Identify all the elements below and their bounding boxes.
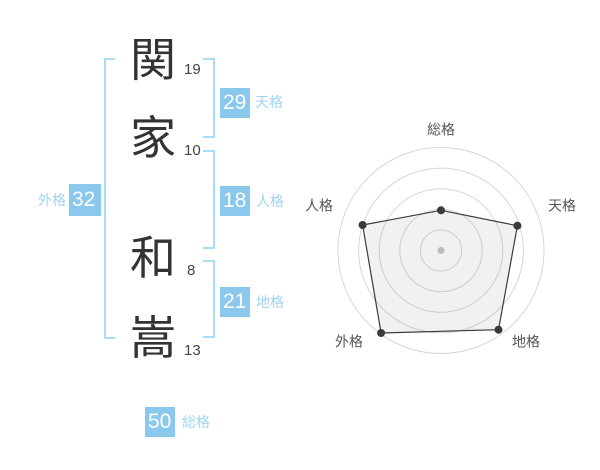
name-char-4: 嵩 bbox=[128, 314, 178, 362]
gaikaku-label: 外格 bbox=[36, 193, 66, 208]
jinkaku-badge: 18 bbox=[220, 186, 250, 216]
radar-axis-label-chikaku: 地格 bbox=[512, 334, 540, 350]
chikaku-label: 地格 bbox=[256, 295, 284, 310]
stroke-count-2: 10 bbox=[184, 143, 201, 158]
tenkaku-bracket bbox=[203, 58, 215, 138]
gaikaku-badge: 32 bbox=[69, 184, 101, 216]
name-fortune-result-panel: 関 19 家 10 和 8 嵩 13 29 天格 18 人格 21 地格 外格 … bbox=[0, 0, 600, 470]
stroke-count-4: 13 bbox=[184, 343, 201, 358]
radar-data-point bbox=[513, 222, 521, 230]
jinkaku-label: 人格 bbox=[256, 194, 284, 209]
radar-axis-label-soukaku: 総格 bbox=[427, 122, 455, 138]
stroke-count-1: 19 bbox=[184, 62, 201, 77]
name-char-3: 和 bbox=[128, 234, 178, 282]
radar-data-polygon bbox=[363, 210, 518, 333]
chikaku-badge: 21 bbox=[220, 287, 250, 317]
gaikaku-bracket bbox=[104, 58, 115, 339]
kaku-radar-chart: 総格天格地格外格人格 bbox=[300, 110, 590, 362]
tenkaku-label: 天格 bbox=[255, 95, 283, 110]
jinkaku-bracket bbox=[203, 150, 215, 249]
radar-axis-label-tenkaku: 天格 bbox=[548, 198, 576, 214]
soukaku-badge: 50 bbox=[145, 407, 175, 437]
name-char-2: 家 bbox=[128, 114, 178, 162]
radar-axis-label-gaikaku: 外格 bbox=[335, 334, 363, 350]
chikaku-bracket bbox=[203, 260, 215, 338]
radar-data-point bbox=[495, 326, 503, 334]
stroke-count-3: 8 bbox=[187, 263, 195, 278]
tenkaku-badge: 29 bbox=[220, 88, 250, 118]
radar-axis-label-jinkaku: 人格 bbox=[305, 198, 333, 214]
radar-data-point bbox=[377, 329, 385, 337]
name-char-1: 関 bbox=[128, 36, 178, 84]
radar-data-point bbox=[437, 206, 445, 214]
soukaku-label: 総格 bbox=[182, 415, 210, 430]
radar-data-point bbox=[359, 221, 367, 229]
